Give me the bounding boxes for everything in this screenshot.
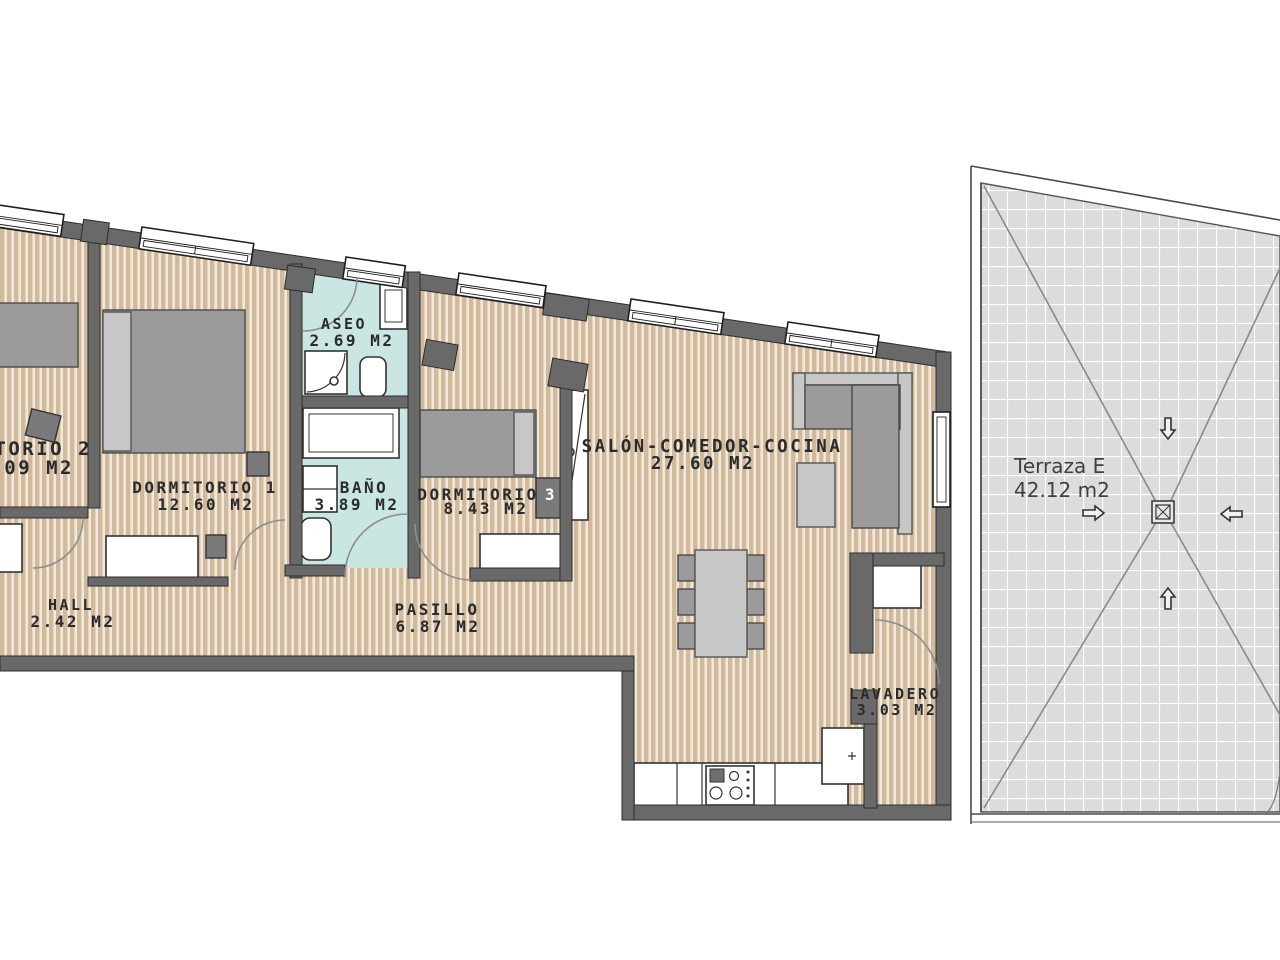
- area-bano: 3.89 M2: [315, 495, 400, 514]
- bathtub: [303, 408, 399, 458]
- washing-machine-icon: [822, 728, 864, 784]
- wall-aseo-dorm3: [408, 272, 420, 578]
- wall-dorm1-bottom: [88, 577, 228, 586]
- wall-dorm2-hall: [0, 507, 88, 518]
- pillow-dormitorio1: [103, 312, 131, 451]
- floor-plan-drawing: ITORIO 2 .09 M2 DORMITORIO 1 12.60 M2 AS…: [0, 0, 1280, 960]
- wall-dorm3-bottom: [470, 568, 572, 581]
- bed-dormitorio2: [0, 303, 78, 367]
- drain-grate-icon: [1152, 501, 1174, 523]
- kitchen-counter: [634, 763, 848, 807]
- dining-table-and-chairs: [678, 550, 764, 657]
- dresser-dormitorio1: [106, 536, 198, 578]
- exterior-wall-step: [622, 662, 634, 820]
- shower-drain: [330, 377, 338, 385]
- wall-connector: [81, 219, 110, 244]
- area-dormitorio1: 12.60 M2: [157, 495, 254, 514]
- exterior-wall-bottom-left: [0, 656, 634, 671]
- wall-connector: [548, 358, 588, 392]
- wall-aseo-bano: [302, 396, 408, 408]
- wall-lavadero-kitchen: [864, 724, 877, 808]
- wall-dorm1-bano: [290, 264, 302, 578]
- shower-tray: [305, 351, 347, 394]
- side-table-dormitorio1: [206, 535, 226, 558]
- nightstand-dormitorio1: [247, 452, 269, 476]
- exterior-wall-bottom-right: [630, 805, 951, 820]
- chaise-table: [797, 463, 835, 527]
- label-terraza: Terraza E: [1013, 454, 1105, 478]
- area-pasillo: 6.87 M2: [396, 617, 481, 636]
- balcony-window: [933, 412, 950, 507]
- area-terraza: 42.12 m2: [1014, 478, 1110, 502]
- area-dormitorio2: .09 M2: [0, 457, 74, 479]
- apartment: ITORIO 2 .09 M2 DORMITORIO 1 12.60 M2 AS…: [0, 200, 951, 820]
- stove-icon: [706, 766, 754, 805]
- toilet-aseo: [360, 357, 386, 397]
- floor-plan-page: ITORIO 2 .09 M2 DORMITORIO 1 12.60 M2 AS…: [0, 0, 1280, 960]
- label-dormitorio3-number: 3: [545, 485, 557, 504]
- area-hall: 2.42 M2: [31, 612, 116, 631]
- toilet-bano: [301, 518, 331, 560]
- wall-bano-bottom: [285, 565, 345, 576]
- wall-connector: [422, 339, 458, 370]
- hall-cabinet: [0, 524, 22, 572]
- area-salon: 27.60 M2: [651, 454, 755, 474]
- area-lavadero: 3.03 M2: [857, 701, 938, 719]
- wall-connector: [284, 265, 315, 293]
- water-heater: [873, 562, 921, 608]
- area-aseo: 2.69 M2: [310, 331, 395, 350]
- wall-lavadero-left: [850, 553, 873, 653]
- pillow-dormitorio3: [514, 412, 534, 475]
- terrace: Terraza E 42.12 m2: [971, 166, 1280, 824]
- wall-dorm2-dorm1: [88, 226, 100, 508]
- area-dormitorio3: 8.43 M2: [444, 499, 529, 518]
- wall-dorm3-salon: [560, 378, 572, 581]
